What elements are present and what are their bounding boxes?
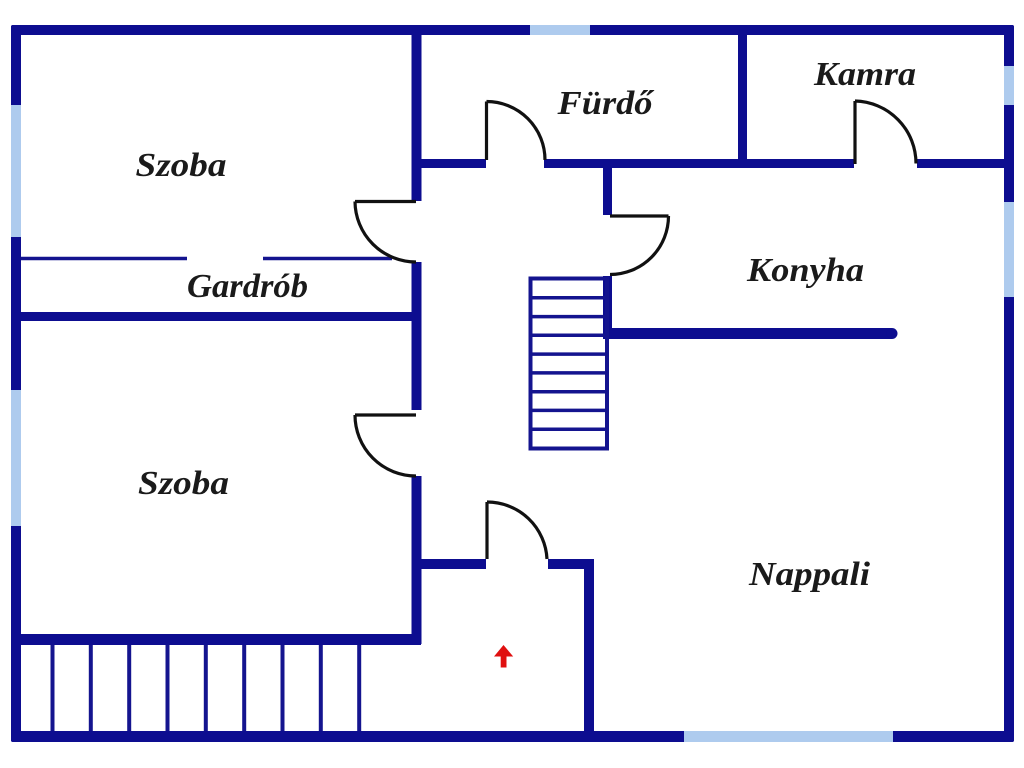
svg-text:Gardrób: Gardrób: [187, 268, 308, 305]
svg-text:Konyha: Konyha: [746, 252, 864, 289]
svg-text:Szoba: Szoba: [138, 465, 229, 502]
svg-text:Nappali: Nappali: [748, 556, 871, 593]
svg-text:Szoba: Szoba: [136, 147, 227, 184]
svg-text:Fürdő: Fürdő: [556, 85, 654, 122]
svg-text:Kamra: Kamra: [813, 56, 916, 93]
